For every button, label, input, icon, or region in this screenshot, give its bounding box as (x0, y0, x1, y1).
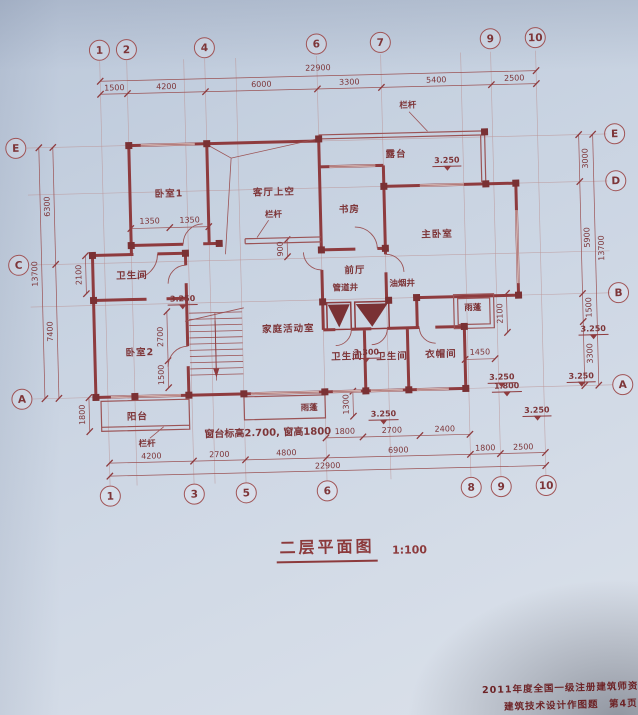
room-bedroom2: 卧室2 (125, 344, 154, 359)
room-canopy-right: 雨蓬 (464, 301, 481, 313)
room-terrace: 露台 (385, 146, 406, 161)
room-bath-left: 卫生间 (116, 267, 148, 282)
room-bath-mid: 卫生间 (331, 348, 363, 363)
dim-in-1350a: 1350 (139, 216, 160, 225)
level-bath-left: 3.250 (168, 294, 198, 306)
room-front-hall: 前厅 (344, 262, 365, 277)
drawing-title: 二层平面图 (276, 533, 378, 564)
dim-top-2500: 2500 (504, 73, 525, 82)
room-study: 书房 (339, 201, 360, 216)
dim-bottom-4800: 4800 (276, 448, 297, 457)
stair-arrow-head (213, 368, 219, 377)
dim-in-900: 900 (276, 241, 285, 256)
room-fume-shaft: 油烟井 (389, 277, 415, 290)
drawing-scale: 1:100 (392, 543, 427, 557)
level-canopy-bottom: 3.250 (522, 405, 552, 417)
dim-top-overall: 22900 (305, 63, 331, 73)
room-master-bedroom: 主卧室 (421, 226, 453, 241)
dim-top-5400: 5400 (426, 75, 447, 84)
stair-arrow (215, 321, 216, 375)
note-railing-bottom: 栏杆 (138, 437, 155, 449)
footer-line2: 建筑技术设计作图题 第4页 (504, 695, 638, 713)
dim-bottom-6900: 6900 (388, 445, 409, 454)
dim-in-2100-right: 2100 (495, 303, 504, 324)
dim-in-1800-left: 1800 (78, 405, 87, 426)
fume-shaft-hatch (356, 303, 389, 327)
room-pipe-shaft: 管道井 (332, 281, 358, 294)
stair-break-line (185, 308, 244, 321)
room-canopy-bottom: 雨蓬 (301, 401, 318, 413)
dim-right-3000: 3000 (580, 148, 589, 169)
dim-left-overall: 13700 (30, 261, 40, 287)
level-terrace: 3.250 (432, 155, 462, 167)
dim-in-1350b: 1350 (179, 215, 200, 224)
level-stair: 1.800 (492, 381, 522, 393)
dim-left-6300: 6300 (42, 196, 51, 217)
dim-bottom-4200: 4200 (141, 451, 162, 460)
dim-in-2100-left: 2100 (74, 265, 83, 286)
photographed-floor-plan-sheet: 1 2 4 6 7 9 10 1 3 5 6 8 9 10 E C A E D … (0, 0, 638, 715)
dim-in-1450: 1450 (470, 347, 491, 356)
drawing-sheet: 1 2 4 6 7 9 10 1 3 5 6 8 9 10 E C A E D … (0, 0, 638, 715)
dim-bottom-2500: 2500 (513, 442, 534, 451)
room-living-void: 客厅上空 (253, 184, 295, 199)
pipe-shaft-hatch (328, 304, 351, 328)
dim-top-6000: 6000 (251, 80, 272, 89)
dim-right-5900: 5900 (582, 227, 591, 248)
dim-in-1500: 1500 (157, 365, 166, 386)
dim-bottom-overall: 22900 (315, 461, 341, 471)
dim-in-2700: 2700 (156, 327, 165, 348)
dim-right-overall: 13700 (597, 235, 607, 261)
room-bedroom1: 卧室1 (154, 185, 183, 200)
dim-left-7400: 7400 (46, 321, 55, 342)
room-balcony: 阳台 (127, 408, 148, 423)
dim-bottom-inner-2400: 2400 (435, 424, 456, 433)
dim-bottom-inner-1800: 1800 (335, 427, 356, 436)
note-railing-mid: 栏杆 (265, 208, 282, 220)
note-window-sill: 窗台标高2.700, 窗高1800 (204, 422, 331, 440)
floor-plan-linework (0, 0, 638, 715)
room-cloakroom: 衣帽间 (425, 346, 457, 361)
dim-in-1300: 1300 (341, 394, 350, 415)
level-canopy-right: 3.250 (579, 324, 609, 336)
dim-bottom-2700: 2700 (209, 450, 230, 459)
room-bath-right: 卫生间 (376, 348, 408, 363)
dim-right-3300: 3300 (585, 343, 594, 364)
dim-top-4200: 4200 (156, 82, 177, 91)
room-family-room: 家庭活动室 (262, 320, 315, 335)
dim-right-1500: 1500 (584, 297, 593, 318)
note-railing-top: 栏杆 (399, 99, 416, 111)
dim-top-1500: 1500 (104, 83, 125, 92)
dim-bottom-1800: 1800 (475, 443, 496, 452)
level-bath-right: 3.250 (566, 371, 596, 383)
dim-top-3300: 3300 (339, 77, 360, 86)
level-balcony: 3.250 (369, 409, 399, 421)
